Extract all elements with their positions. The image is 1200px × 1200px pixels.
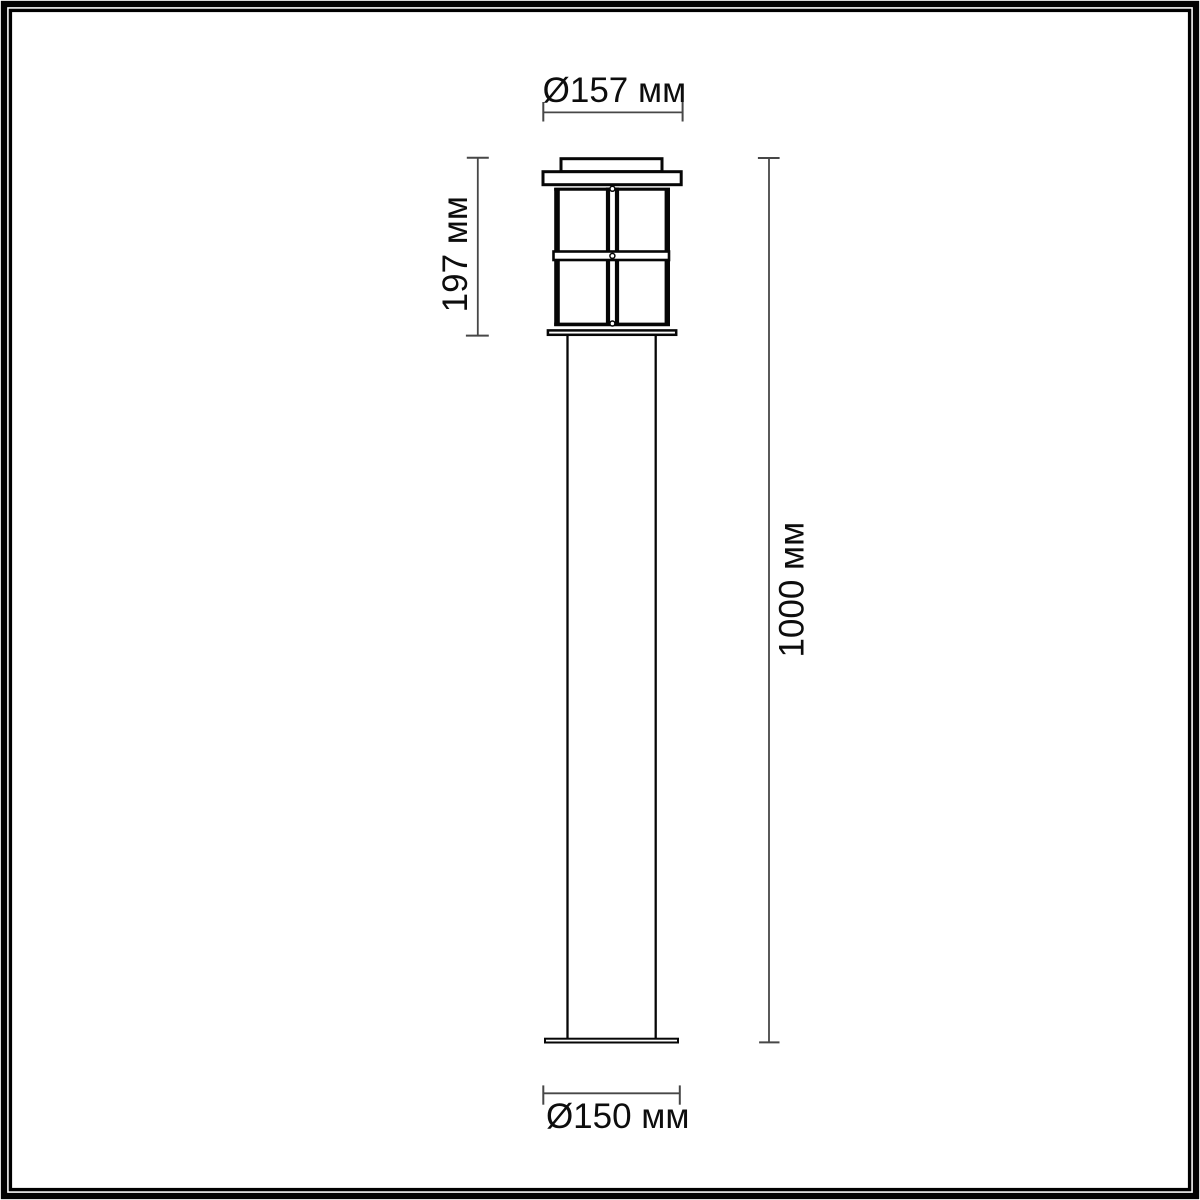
svg-text:Ø150 мм: Ø150 мм [546,1097,689,1136]
svg-text:Ø157 мм: Ø157 мм [543,71,686,110]
svg-text:197 мм: 197 мм [436,196,475,312]
svg-text:1000 мм: 1000 мм [772,522,811,658]
